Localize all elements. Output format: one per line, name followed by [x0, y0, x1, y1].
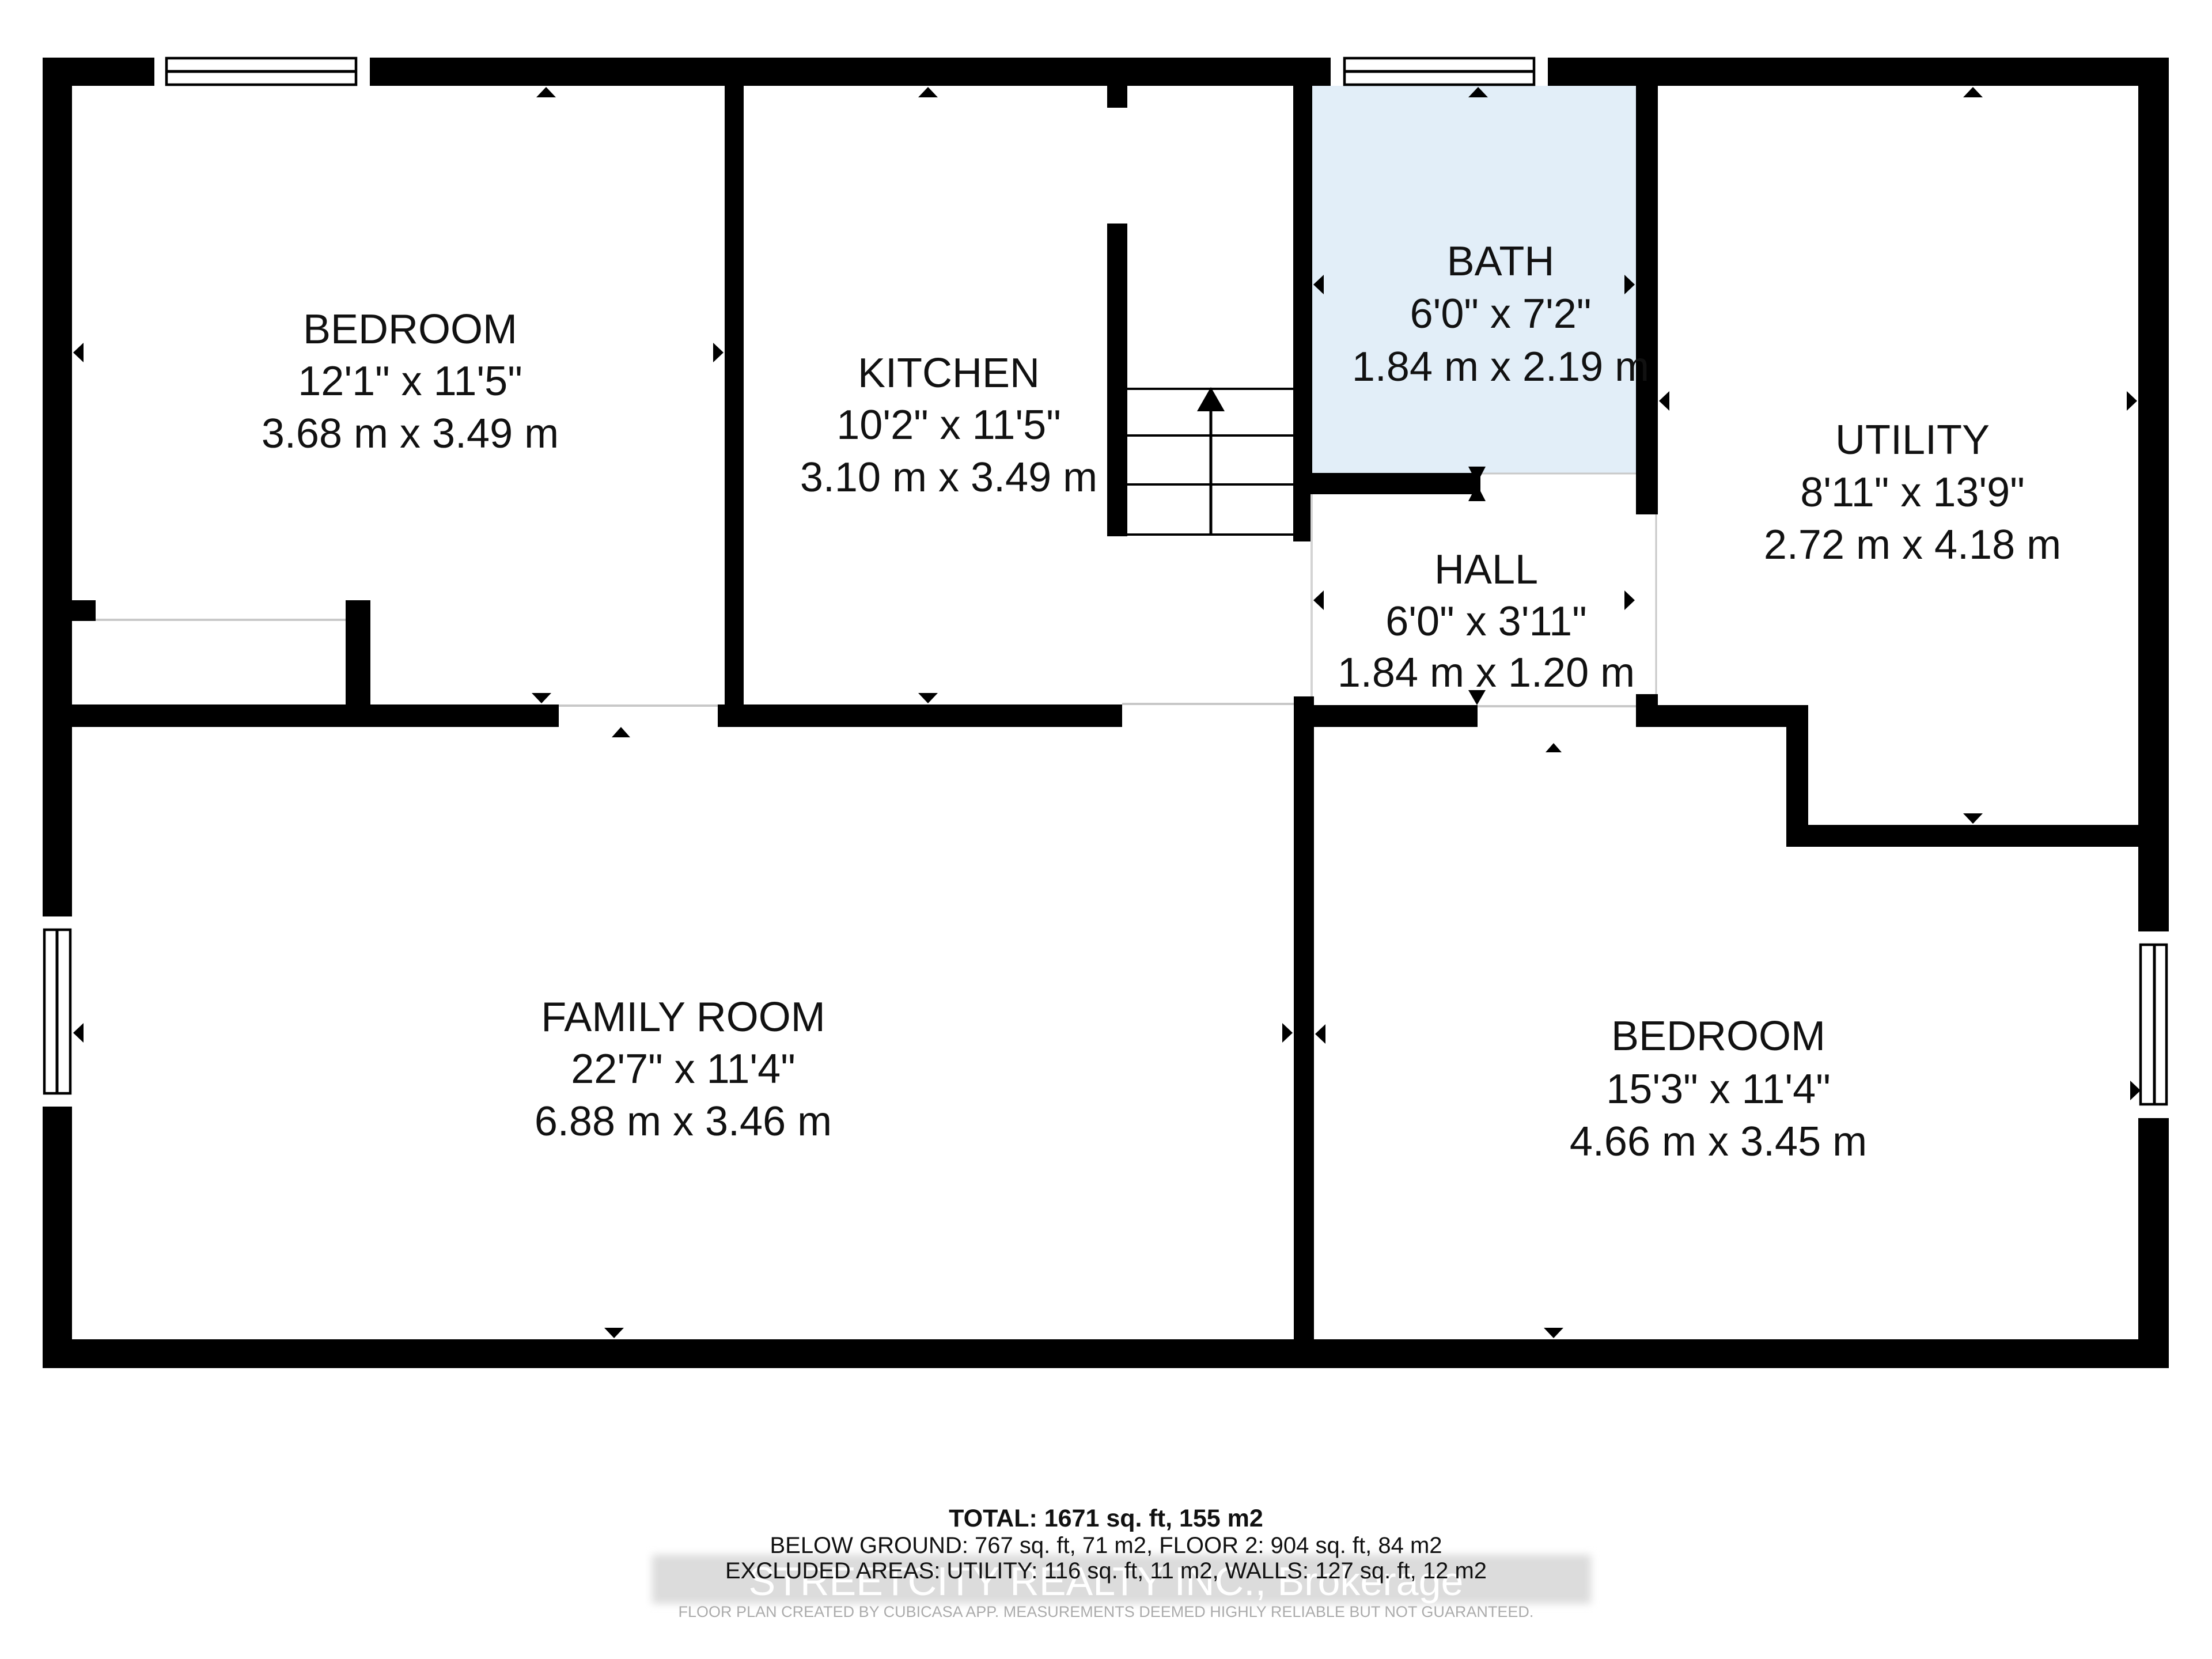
svg-text:3.10 m x 3.49 m: 3.10 m x 3.49 m [800, 454, 1097, 501]
svg-text:6'0" x 7'2": 6'0" x 7'2" [1410, 291, 1592, 337]
svg-text:2.72 m x 4.18 m: 2.72 m x 4.18 m [1764, 522, 2061, 568]
svg-text:BATH: BATH [1447, 238, 1555, 285]
svg-text:15'3" x 11'4": 15'3" x 11'4" [1606, 1066, 1831, 1112]
svg-text:6.88 m x 3.46 m: 6.88 m x 3.46 m [535, 1099, 832, 1145]
svg-text:8'11" x 13'9": 8'11" x 13'9" [1800, 469, 2025, 516]
svg-text:4.66 m x 3.45 m: 4.66 m x 3.45 m [1570, 1119, 1867, 1165]
svg-text:BEDROOM: BEDROOM [303, 306, 517, 353]
svg-text:EXCLUDED AREAS: UTILITY: 116 s: EXCLUDED AREAS: UTILITY: 116 sq. ft, 11 … [725, 1558, 1487, 1584]
svg-text:HALL: HALL [1434, 547, 1538, 593]
svg-text:FAMILY ROOM: FAMILY ROOM [541, 994, 825, 1040]
svg-text:1.84 m x 2.19 m: 1.84 m x 2.19 m [1352, 344, 1649, 390]
svg-text:6'0" x 3'11": 6'0" x 3'11" [1385, 599, 1587, 645]
svg-text:UTILITY: UTILITY [1835, 417, 1990, 463]
svg-text:KITCHEN: KITCHEN [858, 350, 1040, 396]
svg-text:3.68 m x 3.49 m: 3.68 m x 3.49 m [262, 411, 559, 457]
svg-text:12'1" x 11'5": 12'1" x 11'5" [298, 358, 522, 404]
svg-text:22'7" x 11'4": 22'7" x 11'4" [571, 1046, 796, 1092]
svg-text:10'2" x 11'5": 10'2" x 11'5" [836, 402, 1061, 448]
svg-text:BEDROOM: BEDROOM [1611, 1013, 1825, 1059]
svg-text:TOTAL: 1671 sq. ft, 155 m2: TOTAL: 1671 sq. ft, 155 m2 [949, 1505, 1263, 1532]
svg-text:BELOW GROUND: 767 sq. ft, 71 m: BELOW GROUND: 767 sq. ft, 71 m2, FLOOR 2… [770, 1533, 1442, 1558]
svg-text:FLOOR PLAN CREATED BY CUBICASA: FLOOR PLAN CREATED BY CUBICASA APP. MEAS… [679, 1603, 1534, 1620]
svg-text:1.84 m x 1.20 m: 1.84 m x 1.20 m [1338, 650, 1635, 696]
